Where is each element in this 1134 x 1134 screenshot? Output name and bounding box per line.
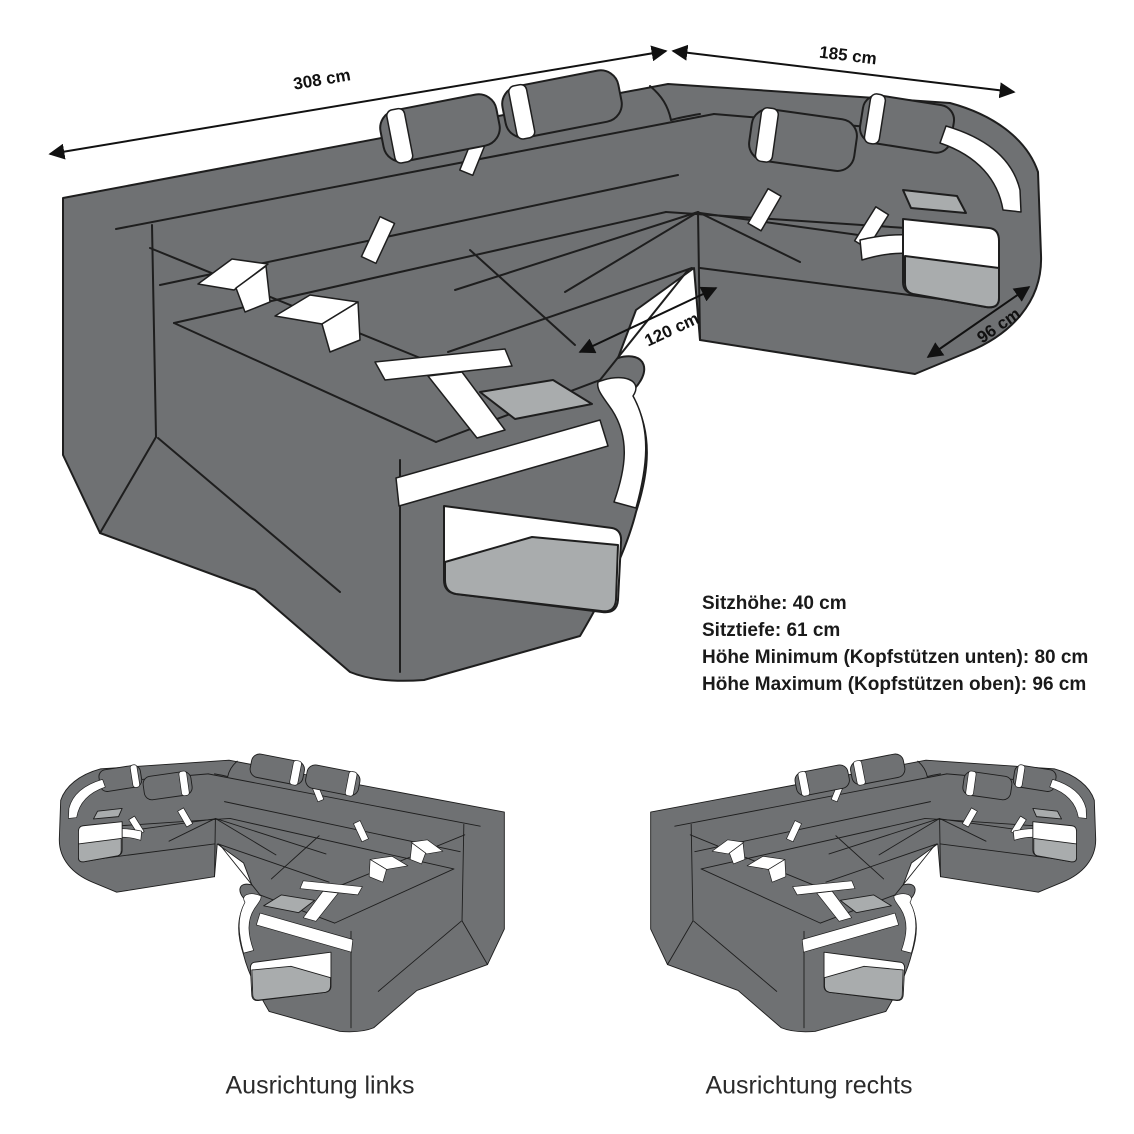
spec-line-seat-height: Sitzhöhe: 40 cm xyxy=(702,590,1088,617)
spec-line-height-max: Höhe Maximum (Kopfstützen oben): 96 cm xyxy=(702,671,1088,698)
spec-line-height-min: Höhe Minimum (Kopfstützen unten): 80 cm xyxy=(702,644,1088,671)
sofa-drawing-variant-right xyxy=(651,752,1096,1032)
sofa-diagram-canvas xyxy=(0,0,1134,1134)
product-dimension-diagram: 308 cm 185 cm 120 cm 96 cm Sitzhöhe: 40 … xyxy=(0,0,1134,1134)
spec-text-block: Sitzhöhe: 40 cm Sitztiefe: 61 cm Höhe Mi… xyxy=(702,590,1088,698)
spec-line-seat-depth: Sitztiefe: 61 cm xyxy=(702,617,1088,644)
sofa-drawing-variant-left xyxy=(59,752,504,1032)
variant-label-left: Ausrichtung links xyxy=(226,1072,415,1101)
sofa-drawing-main xyxy=(63,66,1041,681)
variant-label-right: Ausrichtung rechts xyxy=(705,1072,912,1101)
